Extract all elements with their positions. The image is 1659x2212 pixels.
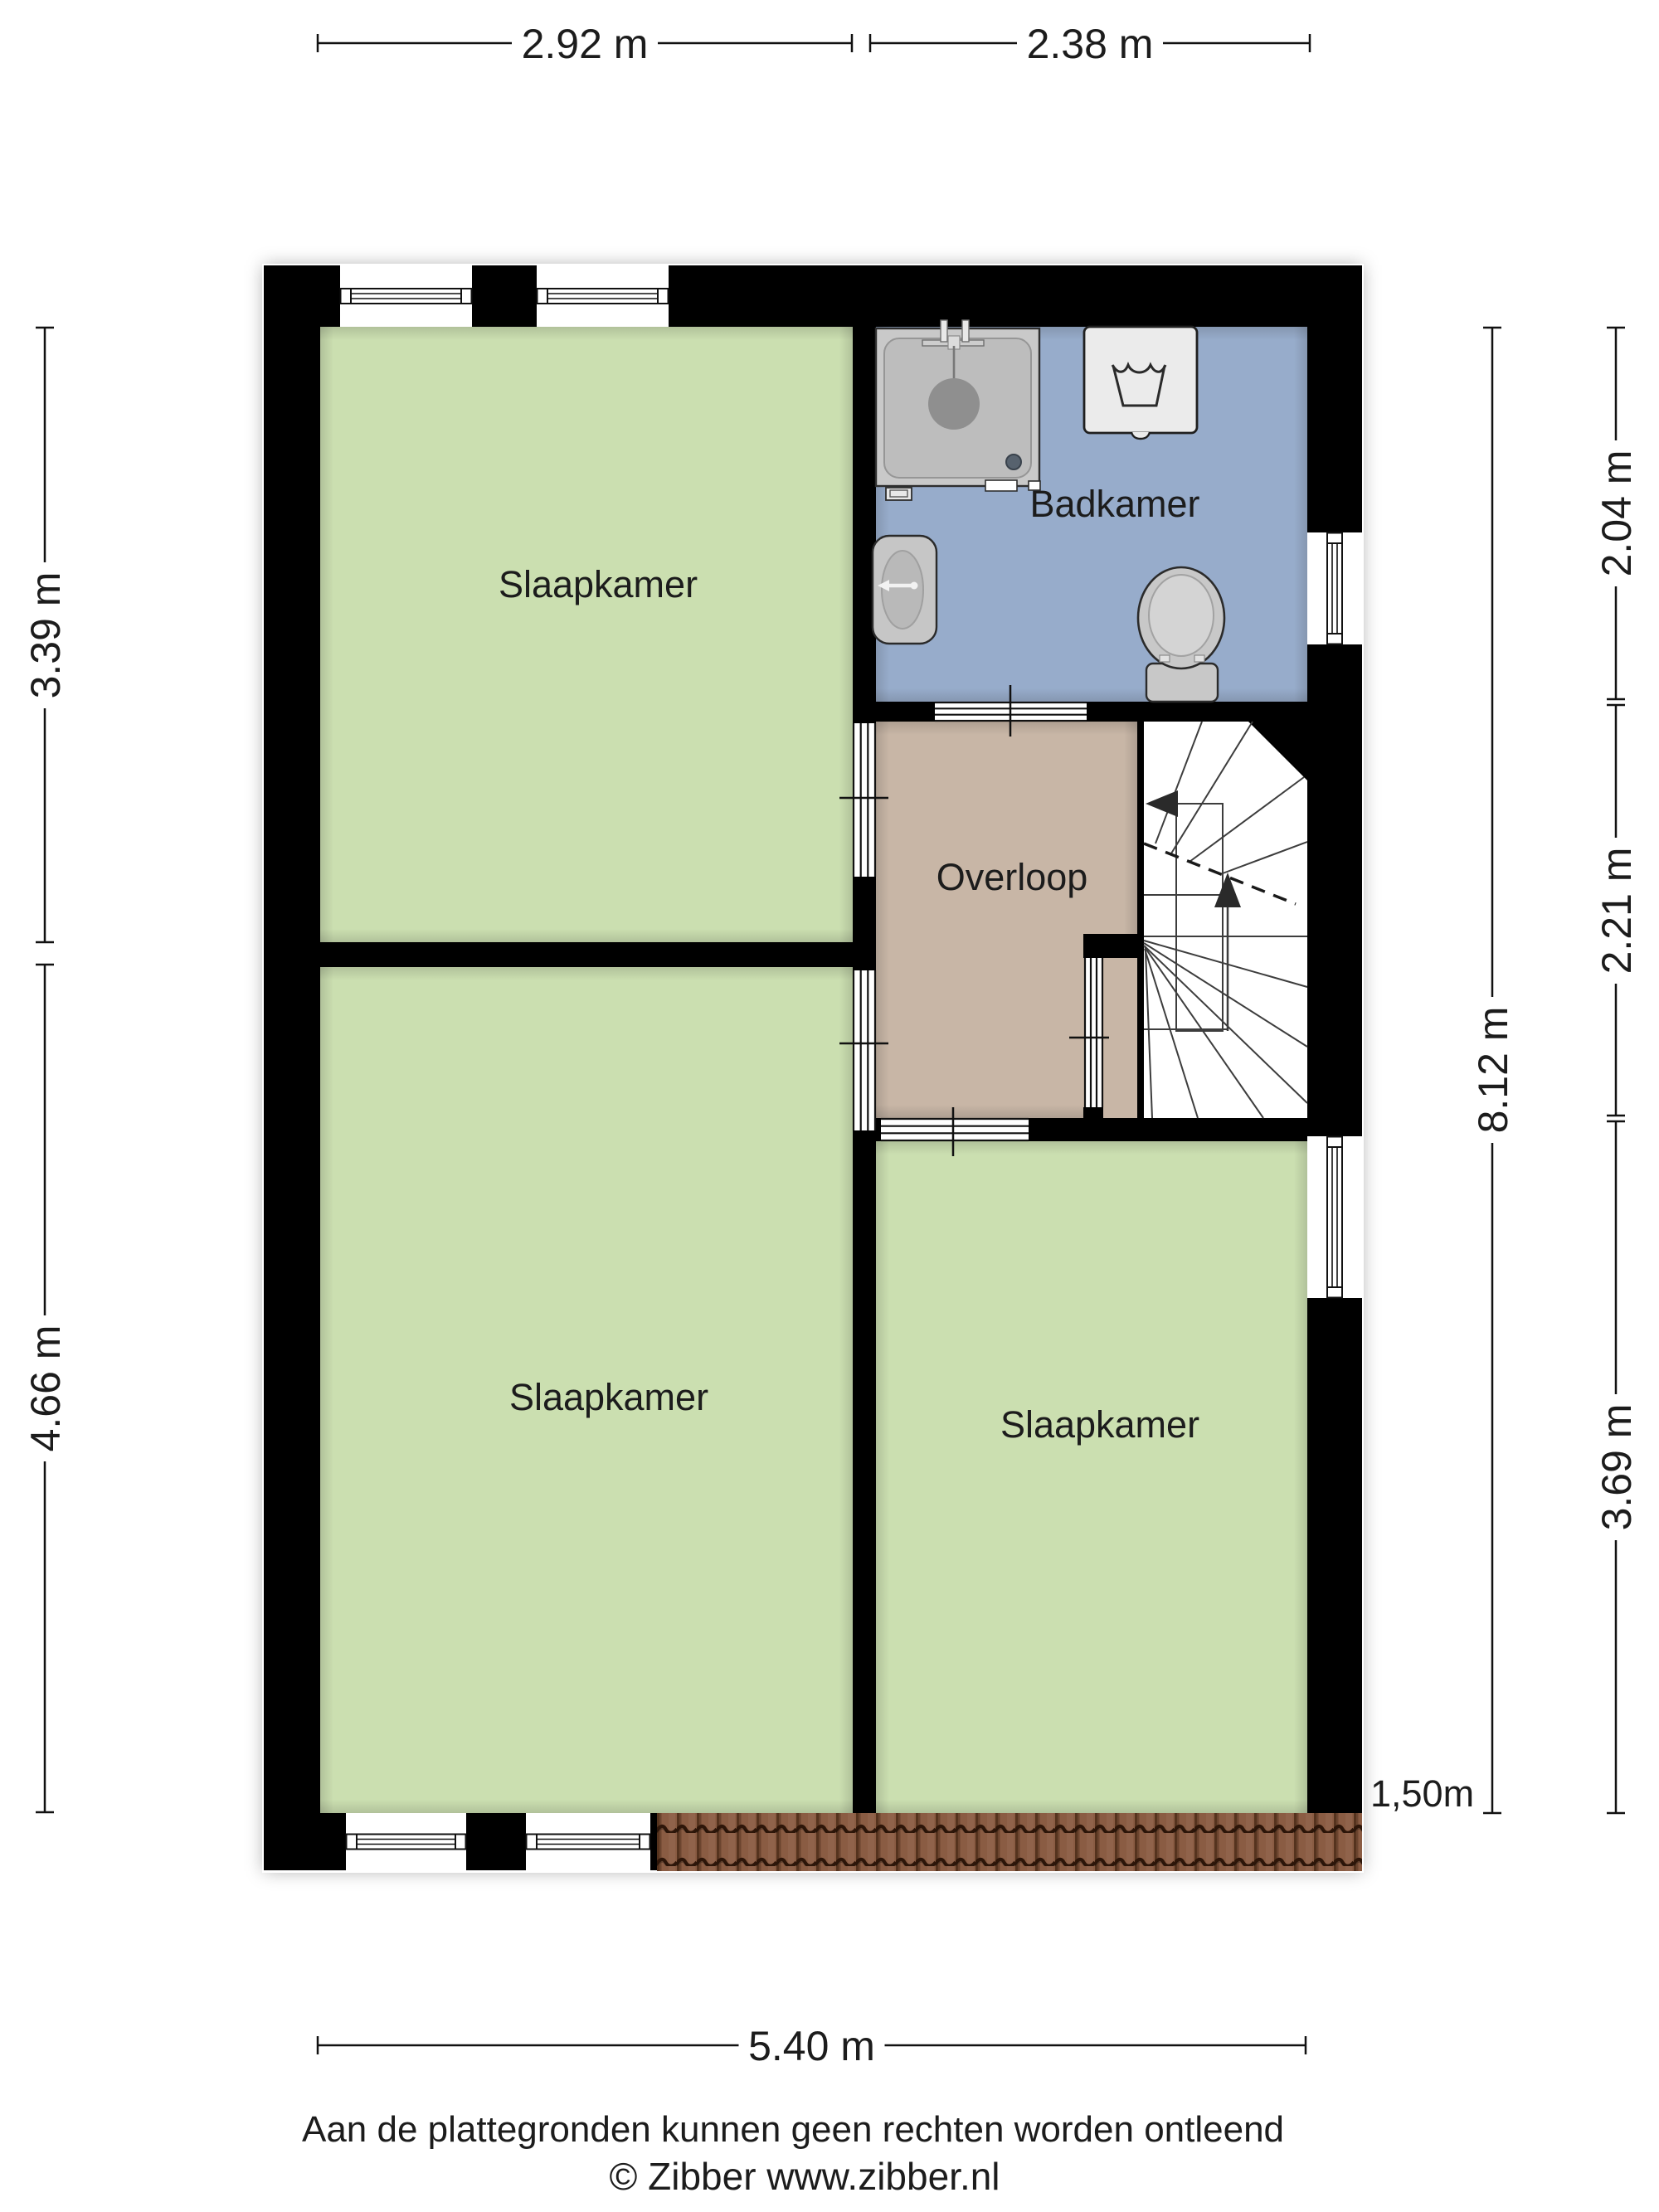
- svg-text:Slaapkamer: Slaapkamer: [1000, 1403, 1199, 1446]
- svg-text:Badkamer: Badkamer: [1029, 483, 1199, 525]
- svg-text:Slaapkamer: Slaapkamer: [509, 1376, 708, 1418]
- svg-text:8.12 m: 8.12 m: [1470, 1007, 1516, 1134]
- svg-text:Slaapkamer: Slaapkamer: [499, 563, 698, 605]
- svg-text:1,50m: 1,50m: [1370, 1772, 1474, 1815]
- svg-text:Aan de plattegronden kunnen ge: Aan de plattegronden kunnen geen rechten…: [302, 2109, 1284, 2150]
- svg-text:3.69 m: 3.69 m: [1593, 1404, 1640, 1531]
- svg-text:3.39 m: 3.39 m: [22, 572, 69, 699]
- svg-text:2.38 m: 2.38 m: [1027, 21, 1154, 67]
- svg-text:5.40 m: 5.40 m: [748, 2023, 875, 2069]
- svg-text:2.21 m: 2.21 m: [1593, 848, 1640, 975]
- svg-text:© Zibber www.zibber.nl: © Zibber www.zibber.nl: [609, 2155, 1000, 2198]
- svg-text:2.92 m: 2.92 m: [522, 21, 649, 67]
- svg-text:4.66 m: 4.66 m: [22, 1325, 69, 1452]
- svg-text:2.04 m: 2.04 m: [1593, 450, 1640, 577]
- svg-text:Overloop: Overloop: [937, 856, 1088, 898]
